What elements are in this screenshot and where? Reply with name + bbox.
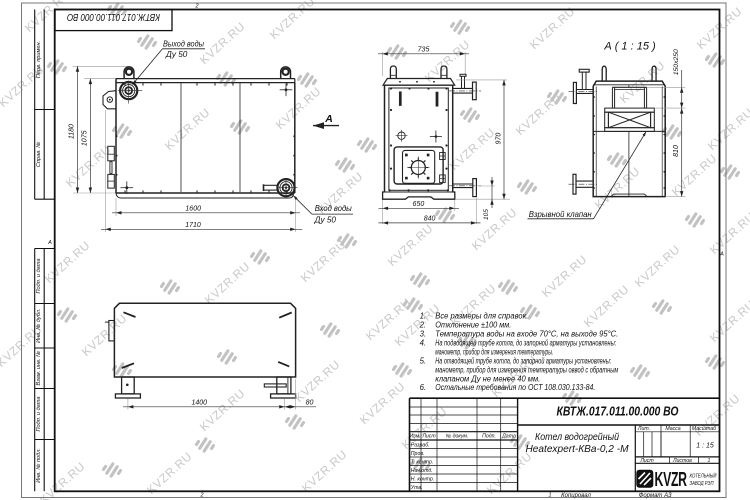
svg-text:1075: 1075 [81,130,88,146]
svg-text:Инв. № дубл.: Инв. № дубл. [36,308,42,342]
svg-text:840: 840 [424,216,436,223]
svg-text:KVZR: KVZR [655,468,687,491]
svg-text:Масштаб: Масштаб [692,426,717,432]
svg-text:Выход воды: Выход воды [163,40,204,49]
svg-text:Лист: Лист [639,458,654,464]
svg-text:А ( 1 : 15 ): А ( 1 : 15 ) [603,41,656,53]
svg-text:Подп. и дата: Подп. и дата [36,258,42,293]
svg-text:6.: 6. [420,383,427,392]
svg-text:Котел водогрейный: Котел водогрейный [535,431,619,443]
svg-text:Дата: Дата [501,434,516,440]
svg-text:На подводящей трубе котла, до: На подводящей трубе котла, до запорной а… [435,339,616,348]
svg-text:Масса: Масса [665,426,680,432]
svg-text:Все размеры для справок.: Все размеры для справок. [435,312,528,321]
svg-text:105: 105 [483,209,490,220]
svg-text:Heatexpert-КВа-0,2 -М: Heatexpert-КВа-0,2 -М [526,443,629,455]
svg-text:1710: 1710 [185,222,201,229]
svg-text:На отводящей трубе котла, до з: На отводящей трубе котла, до запорной ар… [435,357,611,366]
svg-text:КВТЖ.017.011.00.000 ВО: КВТЖ.017.011.00.000 ВО [67,11,160,23]
svg-text:ЗАВОД РЭП: ЗАВОД РЭП [690,481,714,487]
svg-text:Листов: Листов [672,458,692,464]
svg-text:Нач.отд.: Нач.отд. [411,468,433,474]
svg-text:А: А [719,252,724,258]
svg-text:Температура воды на входе 70°С: Температура воды на входе 70°С, на выход… [435,329,618,338]
svg-text:Взам. инв. №: Взам. инв. № [36,351,42,386]
svg-text:4.: 4. [420,339,427,348]
svg-text:2: 2 [194,4,198,10]
svg-text:Подп. и дата: Подп. и дата [36,396,42,431]
svg-text:80: 80 [306,400,314,407]
svg-text:клапаном Ду не менее 40 мм.: клапаном Ду не менее 40 мм. [435,374,540,383]
svg-text:Вход воды: Вход воды [315,204,352,213]
svg-text:Ду 50: Ду 50 [314,216,337,225]
svg-text:А: А [47,240,52,246]
svg-text:1180: 1180 [69,124,76,139]
svg-text:735: 735 [418,47,430,54]
svg-text:Н. контр.: Н. контр. [411,476,434,482]
svg-text:Лист: Лист [421,434,436,440]
svg-text:манометр, прибор для измерения: манометр, прибор для измерения температу… [435,365,618,374]
svg-text:2: 2 [199,493,203,499]
svg-text:Утв.: Утв. [411,485,423,491]
svg-text:5.: 5. [420,357,427,366]
svg-text:Ду 50: Ду 50 [165,50,188,59]
svg-text:150x250: 150x250 [673,49,680,75]
svg-text:3.: 3. [420,329,427,338]
svg-text:Справ. №: Справ. № [36,142,42,167]
svg-text:Отклонение ±100 мм.: Отклонение ±100 мм. [435,321,511,330]
svg-text:Разраб.: Разраб. [411,442,430,448]
svg-text:650: 650 [413,201,425,208]
svg-text:Т. контр.: Т. контр. [411,459,433,465]
svg-text:Перв. примен.: Перв. примен. [36,41,42,78]
svg-text:1600: 1600 [185,206,201,213]
svg-text:№ докум.: № докум. [446,434,469,440]
svg-text:Копировал: Копировал [561,493,591,499]
svg-text:1: 1 [548,493,551,499]
svg-text:Подп.: Подп. [482,434,496,440]
svg-text:Пров.: Пров. [411,451,425,457]
svg-text:Изм.: Изм. [410,434,421,440]
svg-text:Инв. № подл.: Инв. № подл. [36,448,42,483]
svg-text:810: 810 [673,145,680,157]
svg-text:1.: 1. [420,312,427,321]
svg-text:970: 970 [495,133,502,145]
svg-text:Лит.: Лит. [637,426,650,432]
svg-text:Взрывной клапан: Взрывной клапан [529,210,592,219]
svg-text:1 : 15: 1 : 15 [696,442,714,449]
svg-text:1400: 1400 [192,400,208,407]
svg-text:Остальные требования по ОСТ 10: Остальные требования по ОСТ 108.030.133-… [435,383,595,392]
svg-text:А: А [324,113,333,125]
svg-text:2.: 2. [419,321,427,330]
svg-text:КОТЕЛЬНЫЙ: КОТЕЛЬНЫЙ [690,471,717,479]
svg-text:1: 1 [708,458,711,464]
svg-text:манометр, прибор для измерения: манометр, прибор для измерения температу… [435,347,553,356]
svg-text:Формат А3: Формат А3 [639,493,672,499]
svg-text:КВТЖ.017.011.00.000 ВО: КВТЖ.017.011.00.000 ВО [557,404,679,418]
